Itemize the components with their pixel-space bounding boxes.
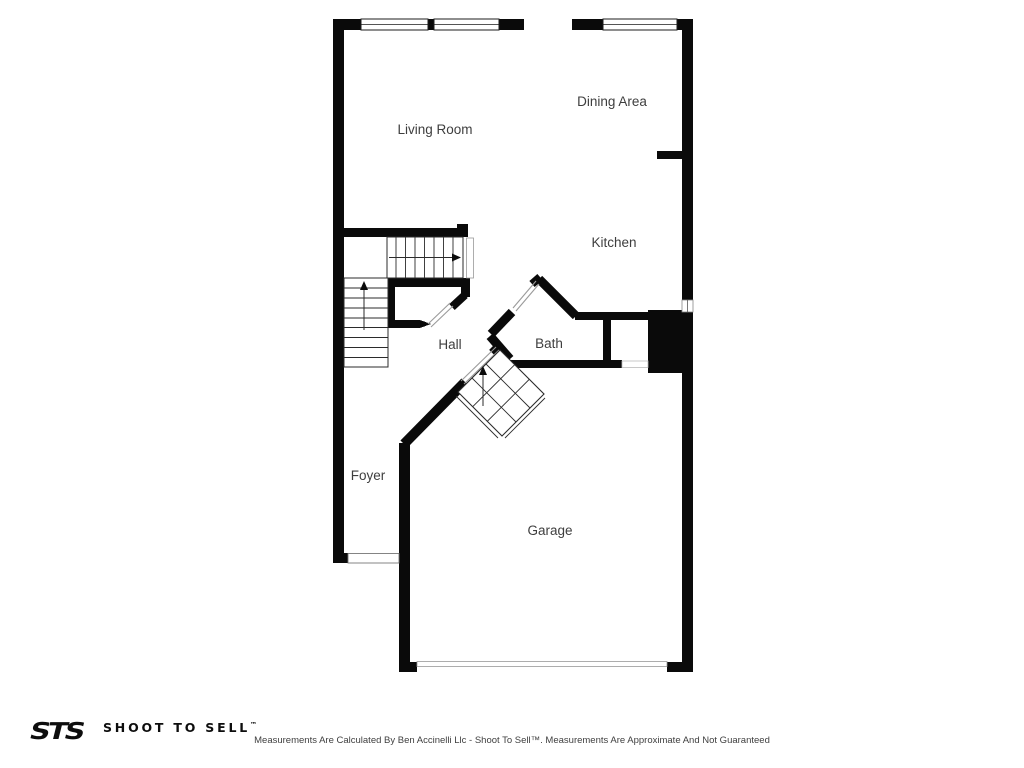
- room-label-foyer: Foyer: [351, 468, 386, 483]
- staircase-lower-run: [344, 278, 388, 367]
- wall-kitchen-stub: [657, 151, 683, 159]
- wall-bath-vertex-jamb: [532, 277, 540, 284]
- wall-segment: [399, 662, 417, 672]
- wall-closet-jamb: [452, 295, 465, 307]
- wall-bath-diag-ne: [539, 279, 576, 316]
- room-label-kitchen: Kitchen: [591, 235, 636, 250]
- brand-wordmark: SHOOT TO SELL™: [103, 720, 257, 735]
- stairs-top-opening: [467, 238, 474, 278]
- garage-door-opening: [417, 662, 667, 667]
- wall-segment: [572, 19, 603, 30]
- room-label-bath: Bath: [535, 336, 563, 351]
- room-label-living-room: Living Room: [397, 122, 472, 137]
- wall-segment: [428, 19, 434, 30]
- wall-bath-right: [603, 312, 611, 368]
- measurement-disclaimer: Measurements Are Calculated By Ben Accin…: [0, 735, 1024, 746]
- wall-bath-top: [575, 312, 652, 320]
- bath-door-line: [513, 281, 536, 308]
- wall-utility-mass: [648, 310, 693, 373]
- bath-area-opening: [622, 361, 648, 368]
- wall-door-jamb-tip: [420, 320, 431, 328]
- entry-opening: [348, 554, 399, 564]
- brand-text: SHOOT TO SELL: [103, 720, 250, 735]
- wall-bath-diag-nw: [491, 312, 512, 334]
- closet-door-line: [431, 306, 453, 327]
- wall-segment: [457, 224, 468, 237]
- floorplan-page: Living Room Dining Area Kitchen Hall Bat…: [0, 0, 1024, 768]
- room-label-garage: Garage: [527, 523, 572, 538]
- trademark-symbol: ™: [250, 721, 257, 729]
- wall-segment: [499, 19, 524, 30]
- wall-closet-bottom: [387, 320, 420, 328]
- wall-segment: [667, 662, 693, 672]
- stairs-outline: [344, 278, 388, 367]
- wall-segment: [333, 553, 348, 563]
- room-label-hall: Hall: [438, 337, 461, 352]
- wall-garage-left: [399, 443, 410, 672]
- wall-hall-top: [333, 228, 468, 237]
- wall-garage-diag: [404, 382, 465, 444]
- wall-left: [333, 19, 344, 563]
- room-label-dining-area: Dining Area: [577, 94, 647, 109]
- wall-stairs-mid: [387, 278, 464, 287]
- wall-right: [682, 19, 693, 300]
- floorplan-canvas: Living Room Dining Area Kitchen Hall Bat…: [0, 0, 1024, 768]
- staircase-upper-run: [387, 237, 463, 278]
- bath-door-line: [516, 284, 539, 311]
- closet-door-line: [428, 303, 450, 324]
